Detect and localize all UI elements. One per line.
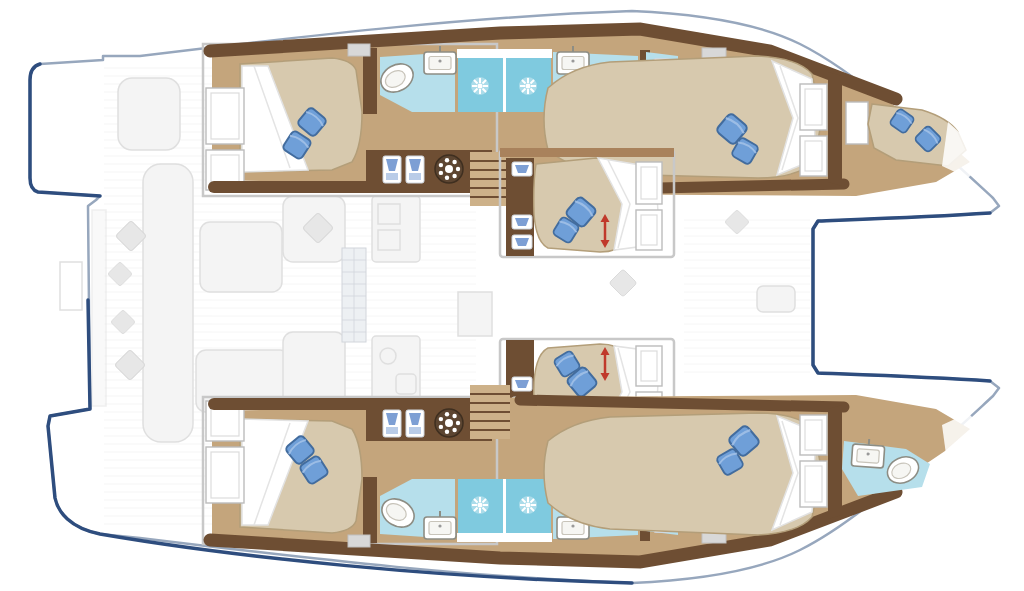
drawer-icon — [512, 215, 532, 229]
drawer-icon — [512, 235, 532, 249]
window-panels — [800, 415, 827, 507]
port-stairs — [470, 152, 510, 206]
shower-divider — [503, 56, 506, 112]
bow-locker-door — [846, 102, 868, 144]
deck-hatch — [348, 535, 370, 547]
locker-icon — [406, 156, 424, 183]
shower-doors — [457, 49, 552, 58]
drawer-icon — [512, 377, 532, 391]
washing-machine-icon — [435, 409, 463, 437]
locker-icon — [383, 410, 401, 437]
cockpit-table-upper — [200, 222, 282, 292]
locker-icon — [406, 410, 424, 437]
aft-cockpit-bench — [143, 164, 193, 442]
window-panels — [800, 84, 827, 176]
port-bow-bulkhead — [828, 72, 842, 186]
transom-ladder — [60, 262, 82, 310]
starboard-stairs — [470, 385, 510, 439]
wardrobe-panels — [206, 401, 244, 503]
starboard-hull-interior — [203, 385, 988, 563]
starboard-forward-cabin-wall — [520, 400, 844, 407]
aft-crossbeam — [92, 210, 106, 406]
cabin-head-wall — [500, 148, 674, 157]
shower-doors — [457, 533, 552, 542]
shower-head-icon — [471, 77, 489, 95]
center-upper-cabin — [500, 148, 674, 257]
shower-head-icon — [519, 496, 537, 514]
shower-divider — [503, 479, 506, 535]
bow-crossbeam-trampoline-edge — [813, 213, 990, 381]
locker-icon — [383, 156, 401, 183]
deck-hatch — [348, 44, 370, 56]
shower-head-icon — [471, 496, 489, 514]
bathroom-wall — [363, 477, 377, 543]
bathroom-wall — [363, 48, 377, 114]
wardrobe-panels — [206, 88, 244, 190]
washing-machine-icon — [435, 155, 463, 183]
starboard-bow-bulkhead — [828, 405, 842, 519]
floor-plan-canvas — [0, 0, 1024, 591]
drawer-icon — [512, 162, 532, 176]
shower-head-icon — [519, 77, 537, 95]
starboard-forward-cabin — [544, 413, 827, 535]
helm-seat — [118, 78, 180, 150]
forward-cockpit-seat — [757, 286, 795, 312]
companionway-grid — [342, 248, 366, 342]
yacht-floor-plan — [0, 0, 1024, 591]
galley-counter-upper — [372, 196, 420, 262]
saloon-cabinet — [458, 292, 492, 336]
